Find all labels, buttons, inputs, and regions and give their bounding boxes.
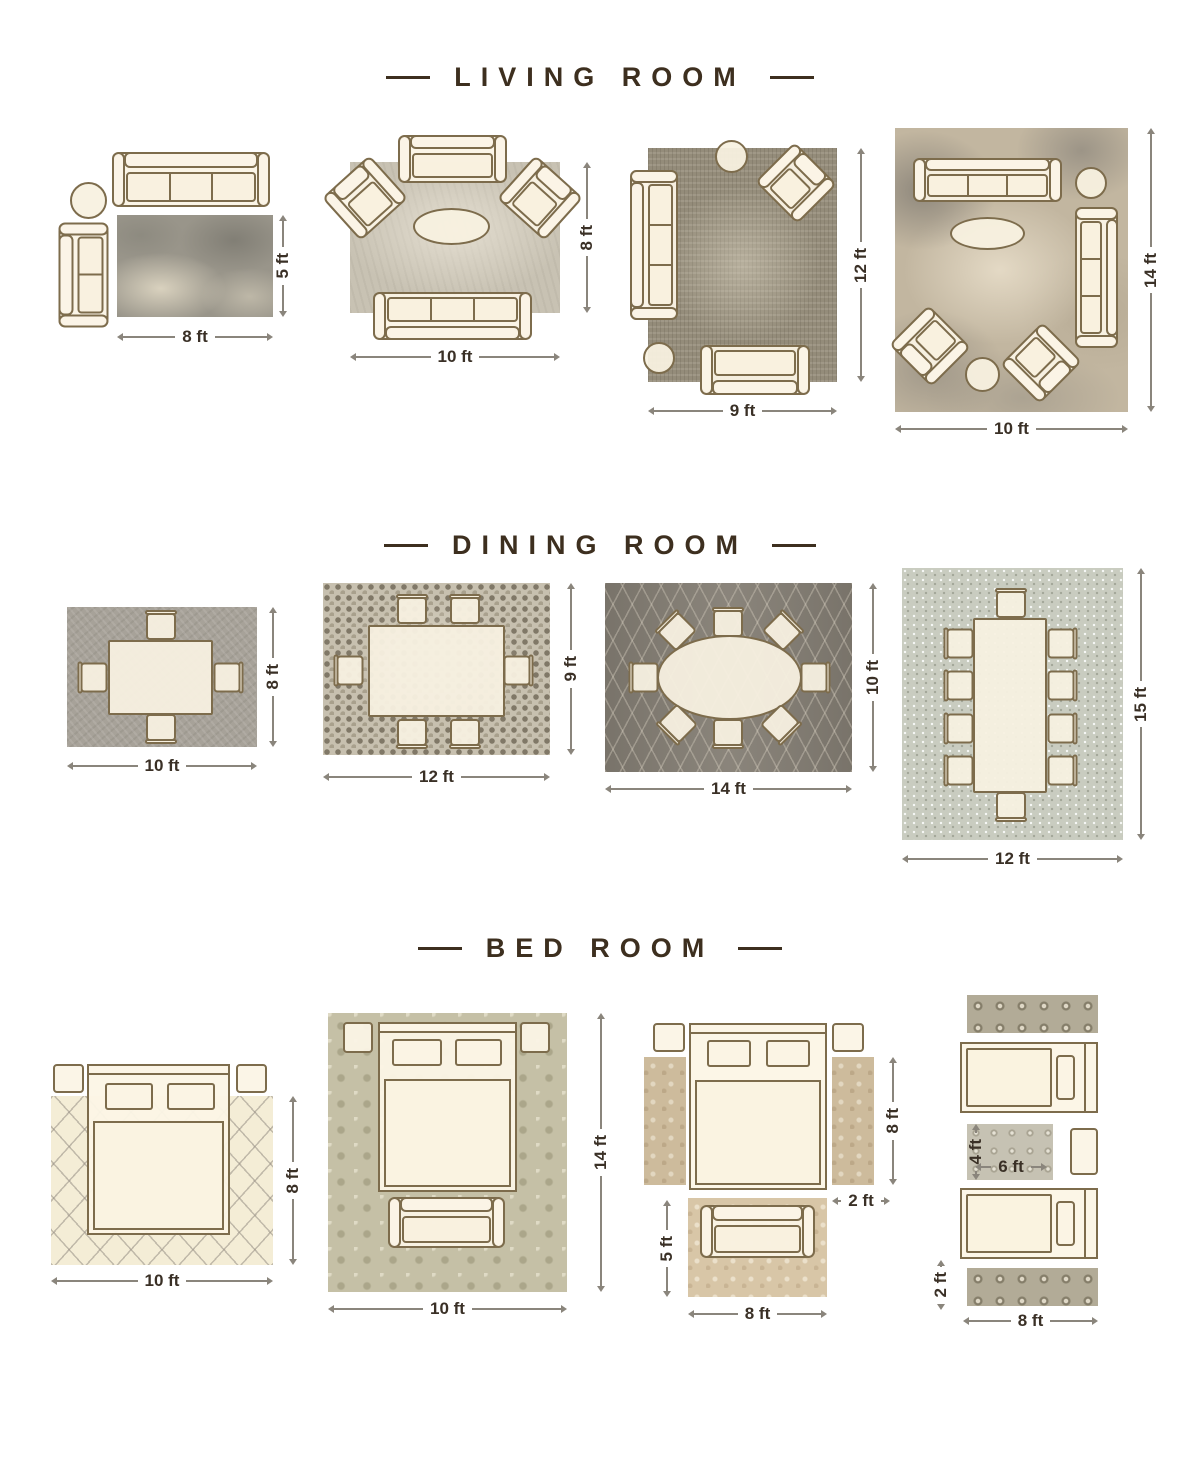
dimension-line xyxy=(969,1320,1011,1322)
dimension-height: 9 ft xyxy=(560,583,582,755)
sofa-seats xyxy=(714,1225,801,1253)
sofa-seats xyxy=(412,153,493,178)
title-dash-left xyxy=(386,76,430,79)
dimension-label: 8 ft xyxy=(263,658,283,696)
headboard xyxy=(1084,1188,1086,1259)
dimension-line xyxy=(282,221,284,247)
dimension-rug-width: 6 ft xyxy=(975,1156,1047,1178)
dimension-label: 8 ft xyxy=(175,327,215,347)
dining-table xyxy=(368,625,505,717)
dimension-line xyxy=(186,765,251,767)
dimension-rug-width: 8 ft xyxy=(688,1303,827,1325)
title-dash-right xyxy=(772,544,816,547)
living-rug-8x5 xyxy=(117,215,273,317)
dimension-label: 14 ft xyxy=(1141,247,1161,294)
dimension-label: 9 ft xyxy=(723,401,763,421)
dining-chair xyxy=(146,613,176,640)
dining-chair xyxy=(801,663,828,693)
section-title-dining-room: DINING ROOM xyxy=(0,530,1200,561)
sofa-three-seat-top xyxy=(913,158,1062,202)
title-dash-right xyxy=(770,76,814,79)
dining-chair xyxy=(397,597,427,624)
nightstand-right xyxy=(832,1023,864,1052)
dimension-line xyxy=(860,288,862,376)
dimension-line xyxy=(666,1206,668,1230)
nightstand-left xyxy=(343,1022,373,1053)
sofa-back xyxy=(1106,219,1118,336)
nightstand-right xyxy=(520,1022,550,1053)
round-side-table xyxy=(715,140,748,173)
dimension-label: 8 ft xyxy=(738,1304,778,1324)
oval-coffee-table xyxy=(950,217,1025,250)
dimension-height: 8 ft xyxy=(282,1096,304,1265)
sofa-back xyxy=(925,158,1050,171)
dimension-line xyxy=(666,1267,668,1291)
dimension-line xyxy=(872,701,874,766)
dimension-line xyxy=(73,765,138,767)
sofa-three-seat xyxy=(112,152,270,207)
dimension-label: 10 ft xyxy=(138,1271,187,1291)
dining-table xyxy=(108,640,213,715)
runner-rug-top xyxy=(967,995,1098,1033)
sofa-seats xyxy=(126,172,256,202)
dining-chair xyxy=(996,792,1026,819)
section-title-text: DINING ROOM xyxy=(452,530,748,561)
dimension-line xyxy=(334,1308,423,1310)
dimension-width: 12 ft xyxy=(902,848,1123,870)
pillow xyxy=(167,1083,215,1110)
dining-chair xyxy=(397,719,427,746)
dining-chair xyxy=(632,663,659,693)
dimension-line xyxy=(1037,858,1117,860)
dining-chair xyxy=(1048,671,1075,701)
bedroom-bench xyxy=(388,1197,505,1248)
dimension-line xyxy=(1150,134,1152,247)
long-dining-table xyxy=(973,618,1047,793)
dimension-line xyxy=(654,410,723,412)
headboard xyxy=(378,1022,517,1033)
dimension-label: 5 ft xyxy=(657,1230,677,1268)
dimension-line xyxy=(600,1019,602,1129)
dimension-runner-width: 2 ft xyxy=(832,1190,890,1212)
headboard xyxy=(1084,1042,1086,1113)
dimension-line xyxy=(1031,1166,1041,1168)
dimension-line xyxy=(1036,428,1122,430)
dimension-label: 14 ft xyxy=(704,779,753,799)
dimension-label: 10 ft xyxy=(431,347,480,367)
dimension-label: 10 ft xyxy=(987,419,1036,439)
dimension-line xyxy=(881,1200,884,1202)
sofa-seats xyxy=(714,350,796,376)
oval-coffee-table xyxy=(413,208,490,245)
runner-rug-right xyxy=(832,1057,874,1185)
loveseat-top xyxy=(398,135,507,183)
dining-chair xyxy=(450,719,480,746)
dimension-label: 14 ft xyxy=(591,1129,611,1176)
dimension-label: 6 ft xyxy=(991,1157,1031,1177)
dimension-line xyxy=(1150,293,1152,406)
pillow xyxy=(392,1039,442,1066)
dimension-line xyxy=(586,256,588,307)
sofa-back xyxy=(59,235,74,316)
round-side-table xyxy=(70,182,107,219)
pillow xyxy=(105,1083,153,1110)
dimension-label: 10 ft xyxy=(863,654,883,701)
dimension-line xyxy=(356,356,431,358)
dimension-bed-height: 8 ft xyxy=(882,1057,904,1185)
dining-chair xyxy=(947,714,974,744)
dimension-label: 8 ft xyxy=(1011,1311,1051,1331)
title-dash-left xyxy=(418,947,462,950)
dimension-line xyxy=(461,776,544,778)
pillow xyxy=(766,1040,810,1067)
bedroom-bench xyxy=(700,1205,815,1258)
bed xyxy=(378,1022,517,1192)
dimension-label: 5 ft xyxy=(273,247,293,285)
dimension-height: 14 ft xyxy=(590,1013,612,1292)
dining-chair xyxy=(214,663,241,693)
bed xyxy=(87,1064,230,1235)
dimension-line xyxy=(272,613,274,658)
dining-chair xyxy=(337,656,364,686)
dimension-line xyxy=(570,589,572,650)
dining-chair xyxy=(1048,714,1075,744)
sofa-seats xyxy=(648,184,673,306)
dimension-label: 10 ft xyxy=(423,1299,472,1319)
sofa-back xyxy=(124,152,258,168)
dining-chair xyxy=(504,656,531,686)
sofa-three-seat xyxy=(373,292,532,340)
loveseat-two-seat xyxy=(59,223,109,328)
sofa-back xyxy=(385,326,520,340)
pillow xyxy=(1056,1055,1075,1101)
dimension-width: 10 ft xyxy=(895,418,1128,440)
sofa-back xyxy=(630,182,644,308)
bed xyxy=(689,1023,827,1190)
dimension-line xyxy=(292,1199,294,1259)
sofa-seats xyxy=(402,1216,491,1243)
rug-size-guide-infographic: LIVING ROOM 5 ft 8 ft 8 xyxy=(0,0,1200,1467)
dimension-line xyxy=(901,428,987,430)
dining-chair xyxy=(450,597,480,624)
dimension-line xyxy=(123,336,175,338)
dimension-width: 12 ft xyxy=(323,766,550,788)
dimension-line xyxy=(282,285,284,311)
dimension-label: 12 ft xyxy=(412,767,461,787)
dimension-label: 15 ft xyxy=(1131,681,1151,728)
dimension-line xyxy=(762,410,831,412)
dimension-width: 9 ft xyxy=(648,400,837,422)
dimension-label: 10 ft xyxy=(138,756,187,776)
dimension-width: 10 ft xyxy=(350,346,560,368)
dining-chair xyxy=(713,719,743,746)
dimension-height: 15 ft xyxy=(1130,568,1152,840)
dimension-line xyxy=(329,776,412,778)
dimension-line xyxy=(600,1176,602,1286)
dimension-width: 14 ft xyxy=(605,778,852,800)
nightstand-right xyxy=(236,1064,267,1093)
pillow xyxy=(455,1039,502,1066)
dimension-runner-height: 2 ft xyxy=(930,1260,952,1310)
nightstand-left xyxy=(53,1064,84,1093)
dimension-rug-height: 5 ft xyxy=(656,1200,678,1297)
sofa-seats xyxy=(77,237,103,314)
round-side-table xyxy=(1075,167,1107,199)
dimension-line xyxy=(1140,574,1142,681)
dining-chair xyxy=(146,714,176,741)
twin-bed-top xyxy=(960,1042,1098,1113)
dimension-label: 2 ft xyxy=(931,1266,951,1304)
sofa-seats xyxy=(387,297,518,322)
dimension-line xyxy=(892,1063,894,1102)
dimension-line xyxy=(479,356,554,358)
dimension-total-width: 8 ft xyxy=(963,1310,1098,1332)
dimension-line xyxy=(908,858,988,860)
dimension-label: 9 ft xyxy=(561,650,581,688)
section-title-text: LIVING ROOM xyxy=(454,62,746,93)
dimension-width: 8 ft xyxy=(117,326,273,348)
dining-chair xyxy=(81,663,108,693)
sofa-back xyxy=(400,1197,493,1212)
dimension-line xyxy=(892,1140,894,1179)
headboard xyxy=(689,1023,827,1034)
runner-rug-left xyxy=(644,1057,686,1185)
runner-rug-bottom xyxy=(967,1268,1098,1306)
dimension-label: 8 ft xyxy=(883,1102,903,1140)
nightstand xyxy=(1070,1128,1098,1175)
sofa-seats xyxy=(1080,221,1102,334)
loveseat-bottom xyxy=(700,345,810,395)
dimension-label: 12 ft xyxy=(988,849,1037,869)
dimension-label: 8 ft xyxy=(283,1162,303,1200)
sofa-back xyxy=(712,1205,803,1221)
dimension-line xyxy=(860,154,862,242)
dining-chair xyxy=(947,629,974,659)
dimension-width: 10 ft xyxy=(328,1298,567,1320)
dimension-line xyxy=(57,1280,138,1282)
blanket xyxy=(966,1048,1052,1107)
dining-chair xyxy=(947,756,974,786)
dimension-line xyxy=(753,788,846,790)
dimension-width: 10 ft xyxy=(67,755,257,777)
dimension-line xyxy=(215,336,267,338)
dimension-label: 2 ft xyxy=(841,1191,881,1211)
sofa-back xyxy=(410,135,495,149)
section-title-text: BED ROOM xyxy=(486,933,715,964)
round-ottoman xyxy=(965,357,1000,392)
blanket xyxy=(384,1079,511,1187)
dimension-height: 12 ft xyxy=(850,148,872,382)
headboard xyxy=(87,1064,230,1075)
dimension-width: 10 ft xyxy=(51,1270,273,1292)
dimension-line xyxy=(777,1313,821,1315)
dimension-line xyxy=(292,1102,294,1162)
sofa-seats xyxy=(927,174,1048,197)
dimension-label: 8 ft xyxy=(577,219,597,257)
dimension-line xyxy=(981,1166,991,1168)
dimension-height: 14 ft xyxy=(1140,128,1162,412)
sofa-three-seat-left xyxy=(630,170,678,320)
round-ottoman xyxy=(643,342,675,374)
title-dash-right xyxy=(738,947,782,950)
dimension-line xyxy=(872,589,874,654)
dimension-line xyxy=(611,788,704,790)
dimension-line xyxy=(694,1313,738,1315)
section-title-bed-room: BED ROOM xyxy=(0,933,1200,964)
dining-chair xyxy=(996,591,1026,618)
dining-chair xyxy=(1048,756,1075,786)
blanket xyxy=(93,1121,224,1230)
dimension-height: 5 ft xyxy=(272,215,294,317)
dining-chair xyxy=(713,610,743,637)
dimension-line xyxy=(1050,1320,1092,1322)
dining-chair xyxy=(947,671,974,701)
sofa-three-seat-right xyxy=(1075,207,1118,348)
dimension-line xyxy=(186,1280,267,1282)
dimension-height: 8 ft xyxy=(576,162,598,313)
dimension-height: 10 ft xyxy=(862,583,884,772)
blanket xyxy=(966,1194,1052,1253)
dimension-line xyxy=(1140,727,1142,834)
dimension-line xyxy=(272,696,274,741)
nightstand-left xyxy=(653,1023,685,1052)
twin-bed-bottom xyxy=(960,1188,1098,1259)
dimension-line xyxy=(570,688,572,749)
dining-chair xyxy=(1048,629,1075,659)
pillow xyxy=(707,1040,751,1067)
title-dash-left xyxy=(384,544,428,547)
dimension-label: 12 ft xyxy=(851,242,871,289)
sofa-back xyxy=(712,380,798,395)
section-title-living-room: LIVING ROOM xyxy=(0,62,1200,93)
dimension-line xyxy=(586,168,588,219)
pillow xyxy=(1056,1201,1075,1247)
dimension-line xyxy=(472,1308,561,1310)
dimension-height: 8 ft xyxy=(262,607,284,747)
blanket xyxy=(695,1080,821,1185)
